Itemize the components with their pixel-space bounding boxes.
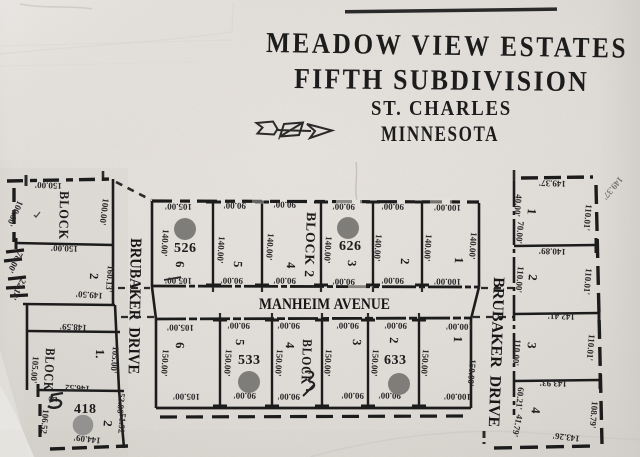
svg-text:143.93': 143.93' (539, 378, 567, 389)
svg-text:3: 3 (524, 342, 538, 349)
svg-text:90.00': 90.00' (336, 321, 359, 331)
svg-text:626: 626 (339, 239, 362, 254)
svg-text:150.00': 150.00' (322, 349, 334, 377)
svg-text:100.00': 100.00' (444, 392, 471, 402)
svg-text:70.00': 70.00' (514, 221, 526, 245)
svg-text:90.00': 90.00' (332, 202, 355, 212)
svg-text:2: 2 (525, 274, 539, 281)
svg-text:BLOCK: BLOCK (298, 339, 315, 385)
svg-text:140.89': 140.89' (538, 246, 566, 257)
svg-text:90.00': 90.00' (341, 391, 364, 401)
svg-text:90.00': 90.00' (277, 392, 300, 402)
svg-text:1.: 1. (93, 349, 107, 359)
svg-text:105.00': 105.00' (173, 392, 200, 402)
svg-text:5: 5 (231, 261, 245, 268)
svg-text:140.00': 140.00' (422, 234, 434, 262)
svg-text:BLOCK: BLOCK (41, 348, 58, 392)
svg-text:6: 6 (173, 261, 187, 268)
svg-text:60.21': 60.21' (514, 387, 526, 411)
svg-text:90.00': 90.00' (277, 321, 300, 331)
svg-text:BRUBAKER DRIVE: BRUBAKER DRIVE (125, 238, 144, 374)
svg-text:5: 5 (233, 339, 247, 346)
svg-text:633: 633 (384, 353, 407, 368)
svg-text:MANHEIM AVENUE: MANHEIM AVENUE (259, 296, 390, 313)
svg-text:150.00': 150.00' (369, 349, 381, 377)
svg-text:140.00': 140.00' (322, 236, 334, 264)
svg-text:146.52: 146.52 (64, 383, 90, 394)
svg-text:MEADOW VIEW ESTATES: MEADOW VIEW ESTATES (266, 27, 628, 65)
svg-text:1: 1 (524, 208, 538, 215)
svg-text:6: 6 (173, 342, 187, 349)
svg-text:140.00': 140.00' (159, 229, 171, 257)
svg-text:148.59': 148.59' (59, 322, 87, 333)
svg-text:100.00': 100.00' (446, 322, 473, 332)
svg-text:150.00': 150.00' (273, 349, 285, 377)
svg-text:140.00': 140.00' (372, 234, 384, 262)
svg-text:90.00': 90.00' (273, 276, 296, 286)
svg-text:1: 1 (451, 336, 465, 343)
svg-text:90.00': 90.00' (381, 276, 404, 286)
svg-text:150.00': 150.00' (34, 180, 62, 191)
svg-text:2: 2 (398, 258, 412, 265)
svg-text:90.00': 90.00' (223, 201, 246, 211)
svg-text:140.00': 140.00' (467, 232, 479, 260)
svg-text:533: 533 (238, 353, 261, 368)
svg-text:51.92: 51.92 (116, 413, 128, 435)
svg-text:90.00': 90.00' (384, 321, 407, 331)
svg-text:BLOCK: BLOCK (56, 191, 72, 240)
svg-text:2: 2 (100, 420, 114, 427)
svg-text:142.41': 142.41' (547, 311, 575, 322)
svg-text:3: 3 (345, 260, 359, 267)
svg-text:150.00': 150.00' (419, 349, 431, 377)
svg-text:2: 2 (387, 337, 401, 344)
svg-text:90.00': 90.00' (273, 200, 296, 210)
svg-text:1: 1 (452, 257, 466, 264)
svg-text:526: 526 (174, 241, 197, 256)
svg-text:149.37': 149.37' (538, 178, 566, 189)
svg-text:BLOCK 2: BLOCK 2 (302, 212, 319, 278)
svg-text:150.00': 150.00' (222, 349, 234, 377)
svg-text:ST. CHARLES: ST. CHARLES (371, 96, 512, 120)
svg-text:100.00': 100.00' (434, 203, 461, 213)
svg-text:105.00': 105.00' (167, 323, 194, 333)
svg-text:150.00': 150.00' (159, 349, 171, 377)
svg-text:140.00': 140.00' (264, 233, 276, 261)
svg-text:149.50': 149.50' (75, 289, 103, 301)
svg-text:40.00': 40.00' (512, 194, 524, 218)
svg-text:2: 2 (87, 273, 101, 279)
svg-text:100.00': 100.00' (434, 277, 461, 287)
svg-text:3: 3 (350, 339, 364, 346)
svg-text:90.00': 90.00' (227, 321, 250, 331)
svg-text:140.00': 140.00' (215, 236, 227, 264)
svg-text:90.00': 90.00' (220, 276, 243, 286)
svg-text:FIFTH SUBDIVISION: FIFTH SUBDIVISION (294, 63, 589, 98)
svg-text:MINNESOTA: MINNESOTA (381, 121, 499, 146)
svg-text:105.00': 105.00' (165, 202, 192, 212)
svg-text:90.00': 90.00' (332, 277, 355, 287)
svg-text:150.00': 150.00' (50, 243, 78, 254)
svg-text:90.00': 90.00' (381, 202, 404, 212)
svg-text:418: 418 (74, 402, 97, 417)
